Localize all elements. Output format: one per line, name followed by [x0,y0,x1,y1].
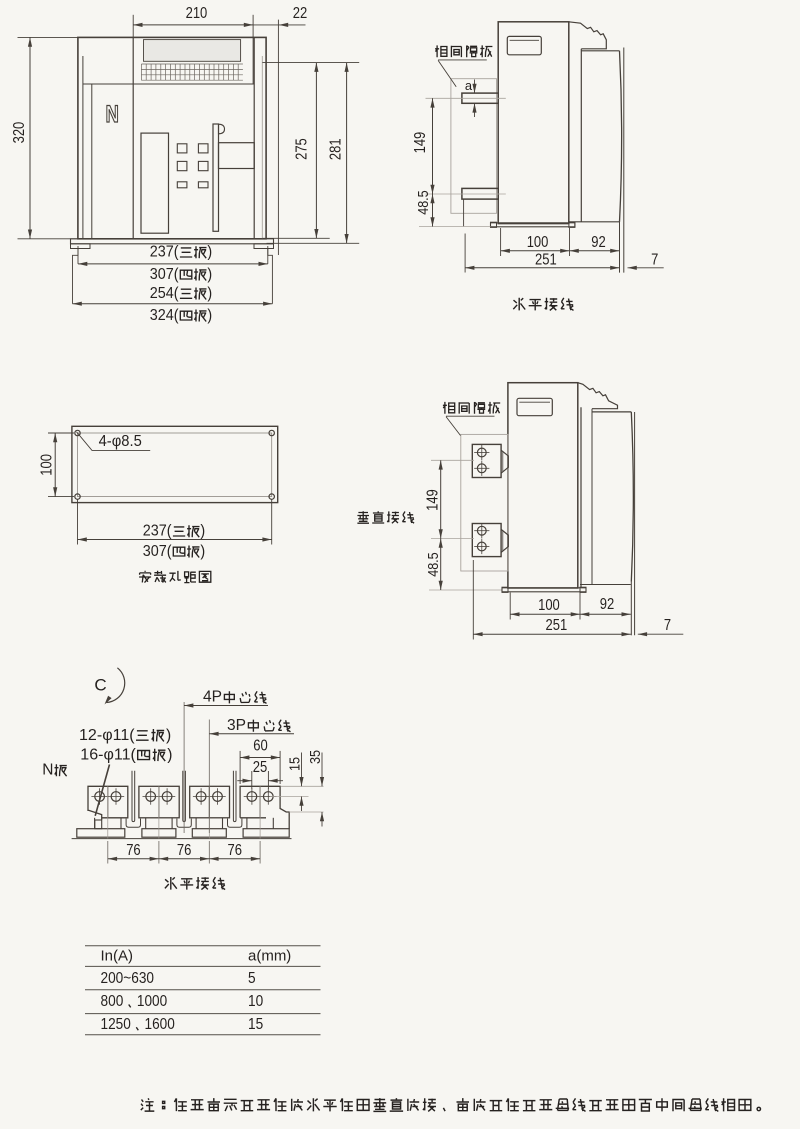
svg-text:4P: 4P [203,689,222,706]
svg-text:1600: 1600 [145,1016,176,1033]
svg-text:76: 76 [126,842,141,859]
svg-text:48.5: 48.5 [415,190,432,215]
svg-text:251: 251 [535,251,557,268]
svg-text:C: C [94,676,106,695]
svg-text:): ) [207,244,212,261]
svg-text:3P: 3P [227,717,246,734]
svg-text:15: 15 [248,1016,263,1033]
svg-text:22: 22 [293,5,308,22]
svg-text:800: 800 [101,993,124,1010]
svg-text:In(A): In(A) [101,948,134,965]
svg-text:76: 76 [177,842,192,859]
svg-text:275: 275 [294,138,311,160]
svg-text:10: 10 [248,993,264,1010]
svg-text:7: 7 [664,617,671,634]
svg-text:100: 100 [538,597,560,614]
svg-text:a(mm): a(mm) [248,948,291,965]
svg-text:35: 35 [307,750,324,764]
svg-text:): ) [167,747,172,764]
svg-text:149: 149 [412,132,429,154]
svg-text:60: 60 [253,737,268,754]
svg-text:N: N [42,762,53,779]
svg-text:): ) [200,543,205,560]
svg-text:): ) [207,307,212,324]
svg-text:7: 7 [651,251,658,268]
svg-text:5: 5 [248,970,256,987]
svg-text:): ) [207,266,212,283]
svg-text:): ) [200,523,205,540]
svg-text:254(: 254( [150,285,180,302]
svg-text:): ) [207,285,212,302]
svg-text:324(: 324( [150,307,180,324]
svg-text:15: 15 [286,757,303,771]
svg-text:25: 25 [253,759,267,776]
svg-text:1250: 1250 [101,1016,132,1033]
svg-text:76: 76 [228,842,243,859]
svg-text:210: 210 [186,5,208,22]
svg-text:48.5: 48.5 [425,552,442,577]
svg-text:281: 281 [328,138,345,160]
svg-text:100: 100 [527,234,549,251]
svg-text:100: 100 [39,454,56,476]
svg-text:200~630: 200~630 [101,970,155,987]
svg-text:N: N [106,100,119,127]
svg-text:4-φ8.5: 4-φ8.5 [99,433,142,450]
svg-text:1000: 1000 [137,993,168,1010]
svg-text:251: 251 [546,617,568,634]
svg-text:307(: 307( [143,543,173,560]
svg-text:320: 320 [11,121,28,143]
svg-text:149: 149 [425,489,442,511]
svg-text:): ) [166,727,171,744]
svg-text:12-φ11(: 12-φ11( [79,727,135,744]
svg-text:a: a [465,78,473,93]
svg-text:92: 92 [600,596,615,613]
svg-text:16-φ11(: 16-φ11( [80,747,136,764]
svg-text:237(: 237( [143,523,173,540]
svg-text:307(: 307( [150,266,180,283]
svg-text:237(: 237( [150,244,180,261]
svg-text:92: 92 [591,234,606,251]
